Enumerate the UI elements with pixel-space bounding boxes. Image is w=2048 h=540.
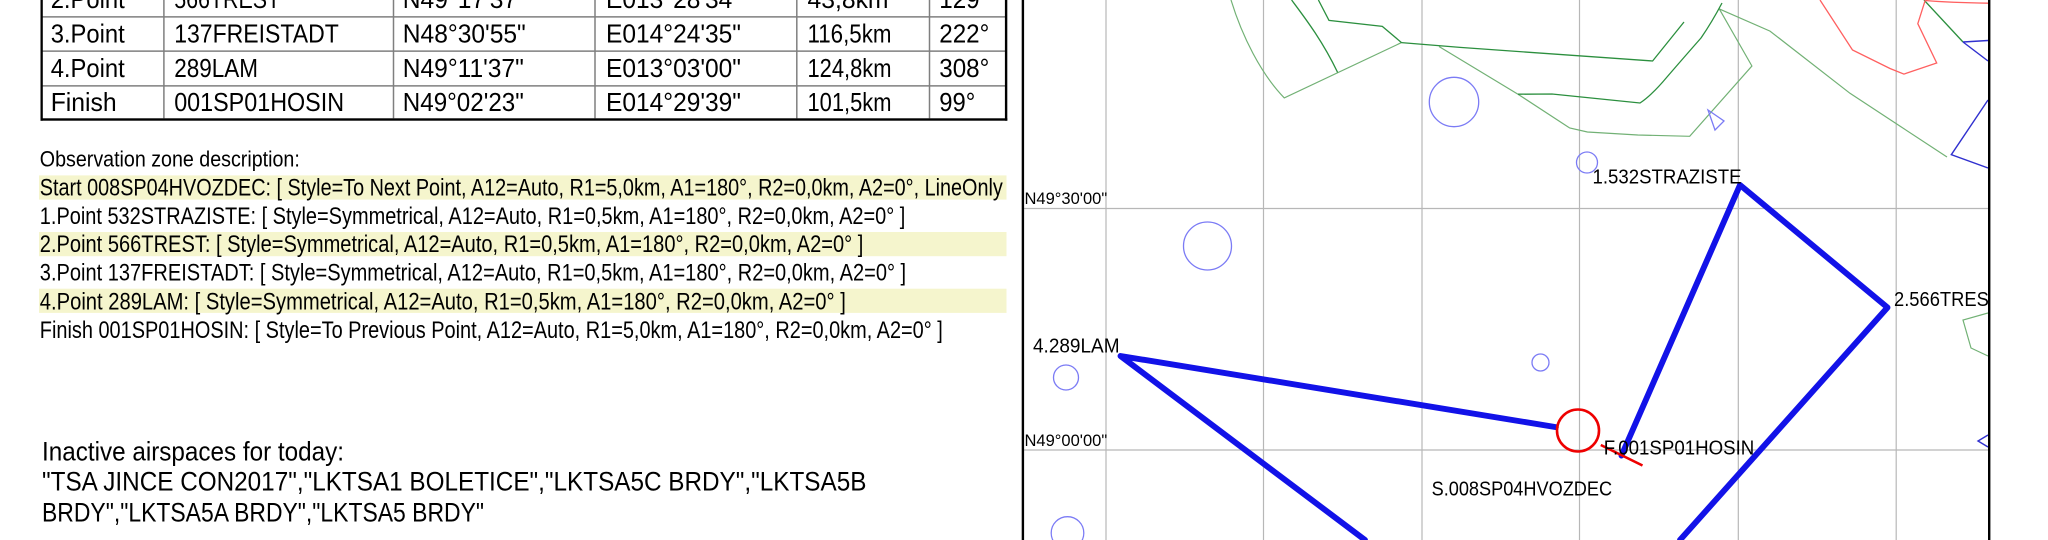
svg-text:2.566TREST: 2.566TREST [1894,288,2000,311]
svg-text:1.Point 532STRAZISTE: [ Style=: 1.Point 532STRAZISTE: [ Style=Symmetrica… [40,203,906,230]
svg-text:N49°30'00": N49°30'00" [1025,189,1108,208]
svg-text:289LAM: 289LAM [174,55,258,83]
svg-text:S.008SP04HVOZDEC: S.008SP04HVOZDEC [1432,477,1613,500]
svg-text:4.Point: 4.Point [51,55,125,83]
svg-text:Finish 001SP01HOSIN: [ Style=T: Finish 001SP01HOSIN: [ Style=To Previous… [40,317,943,344]
svg-text:3.Point 137FREISTADT: [ Style=: 3.Point 137FREISTADT: [ Style=Symmetrica… [40,260,906,287]
svg-text:137FREISTADT: 137FREISTADT [174,20,339,48]
svg-text:N49°00'00": N49°00'00" [1025,431,1108,450]
svg-text:E013°28'34": E013°28'34" [606,0,741,14]
svg-text:E013°03'00": E013°03'00" [606,55,741,83]
svg-text:Finish: Finish [51,89,117,117]
svg-text:N48°30'55": N48°30'55" [403,20,526,48]
svg-text:101,5km: 101,5km [808,89,892,117]
svg-text:3.Point: 3.Point [51,20,125,48]
svg-text:308°: 308° [939,55,989,83]
svg-text:001SP01HOSIN: 001SP01HOSIN [174,89,344,117]
svg-text:129°: 129° [939,0,989,14]
svg-text:4.Point 289LAM: [ Style=Symmet: 4.Point 289LAM: [ Style=Symmetrical, A12… [40,288,846,315]
svg-text:124,8km: 124,8km [808,55,892,83]
svg-text:4.289LAM: 4.289LAM [1033,335,1120,358]
svg-text:566TREST: 566TREST [174,0,280,14]
svg-text:Observation zone description:: Observation zone description: [40,146,300,171]
svg-text:"TSA JINCE CON2017","LKTSA1 BO: "TSA JINCE CON2017","LKTSA1 BOLETICE","L… [42,467,866,497]
svg-text:N49°11'37": N49°11'37" [403,55,524,83]
svg-text:2.Point: 2.Point [51,0,125,14]
svg-text:99°: 99° [939,89,975,117]
svg-text:BRDY","LKTSA5A BRDY","LKTSA5 B: BRDY","LKTSA5A BRDY","LKTSA5 BRDY" [42,498,484,528]
svg-text:E014°29'39": E014°29'39" [606,89,741,117]
svg-text:116,5km: 116,5km [808,20,892,48]
svg-text:Start 008SP04HVOZDEC: [ Style=: Start 008SP04HVOZDEC: [ Style=To Next Po… [40,174,1004,201]
svg-text:E014°24'35": E014°24'35" [606,20,741,48]
svg-text:222°: 222° [939,20,989,48]
svg-text:43,8km: 43,8km [808,0,889,14]
svg-text:F.001SP01HOSIN: F.001SP01HOSIN [1604,437,1755,460]
svg-text:N49°02'23": N49°02'23" [403,89,524,117]
svg-text:Inactive airspaces for today:: Inactive airspaces for today: [42,437,344,467]
svg-text:1.532STRAZISTE: 1.532STRAZISTE [1593,166,1742,189]
svg-text:N49°17'37": N49°17'37" [403,0,526,14]
svg-text:2.Point 566TREST: [ Style=Symm: 2.Point 566TREST: [ Style=Symmetrical, A… [40,231,864,258]
